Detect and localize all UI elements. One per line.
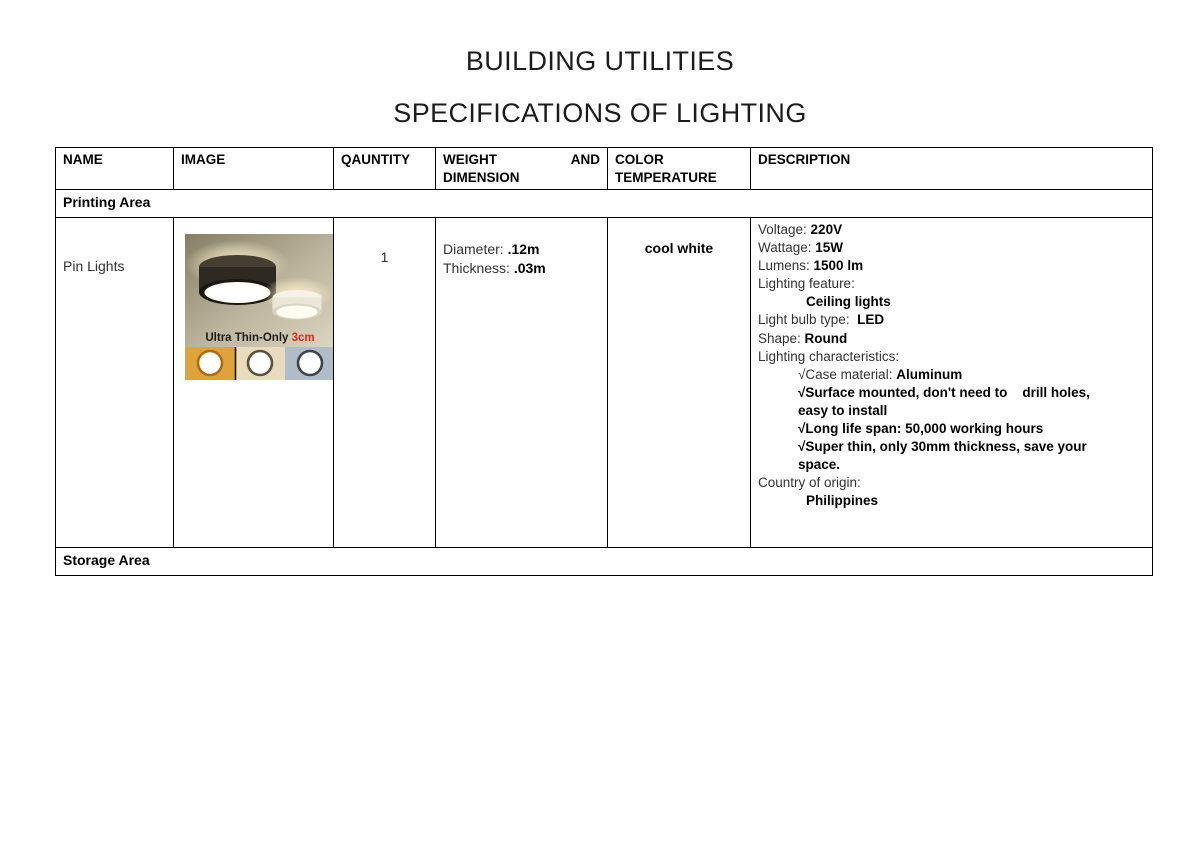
description-line: √Case material: Aluminum xyxy=(798,366,1146,384)
description-line: Voltage: 220V xyxy=(758,221,1146,239)
description-line-value: LED xyxy=(857,312,884,327)
description-line-label: Shape: xyxy=(758,331,805,346)
description-line-label: Lumens: xyxy=(758,258,814,273)
product-description: Voltage: 220VWattage: 15WLumens: 1500 lm… xyxy=(751,218,1153,548)
description-line: √Surface mounted, don't need to drill ho… xyxy=(798,384,1146,420)
dimension-diameter-label: Diameter: xyxy=(443,241,508,257)
description-line-value: 220V xyxy=(811,222,843,237)
description-line: Philippines xyxy=(806,492,1146,510)
description-line-value: Aluminum xyxy=(896,367,962,382)
header-image: IMAGE xyxy=(174,148,334,190)
caption-ultra-thin-text: Ultra Thin-Only xyxy=(205,332,291,344)
product-quantity: 1 xyxy=(334,218,436,548)
description-line-label: Lighting characteristics: xyxy=(758,349,899,364)
product-image-caption: Ultra Thin-Only 3cm xyxy=(205,332,314,344)
swatch-lamp-circle-warm xyxy=(198,351,222,375)
description-line: √Super thin, only 30mm thickness, save y… xyxy=(798,438,1146,474)
description-line-value: Philippines xyxy=(806,493,878,508)
description-line: Wattage: 15W xyxy=(758,239,1146,257)
dimension-diameter: Diameter: .12m xyxy=(443,240,600,259)
description-line: Ceiling lights xyxy=(806,293,1146,311)
header-quantity: QAUNTITY xyxy=(334,148,436,190)
description-line-value: √Long life span: 50,000 working hours xyxy=(798,421,1043,436)
header-color-temperature: COLOR TEMPERATURE xyxy=(608,148,751,190)
header-weight-dimension: WEIGHT AND DIMENSION xyxy=(436,148,608,190)
description-lines: Voltage: 220VWattage: 15WLumens: 1500 lm… xyxy=(758,221,1146,511)
description-line-value: √Surface mounted, don't need to drill ho… xyxy=(798,385,1090,418)
description-line: Lighting feature: xyxy=(758,275,1146,293)
product-name: Pin Lights xyxy=(56,218,174,548)
description-line-value: Round xyxy=(805,331,848,346)
description-line-label: Light bulb type: xyxy=(758,312,857,327)
caption-3cm-text: 3cm xyxy=(292,332,315,344)
description-line: Light bulb type: LED xyxy=(758,311,1146,329)
description-line-value: 15W xyxy=(815,240,843,255)
description-line: √Long life span: 50,000 working hours xyxy=(798,420,1146,438)
pin-lights-product-image: Ultra Thin-Only 3cm xyxy=(185,234,334,380)
table-row-pin-lights: Pin Lights xyxy=(56,218,1153,548)
header-description: DESCRIPTION xyxy=(751,148,1153,190)
section-label-storage-area: Storage Area xyxy=(56,548,1153,576)
description-line-label: √Case material: xyxy=(798,367,896,382)
page-title: BUILDING UTILITIES xyxy=(0,0,1200,78)
description-line: Shape: Round xyxy=(758,330,1146,348)
swatch-lamp-circle-natural xyxy=(248,351,272,375)
description-line-label: Country of origin: xyxy=(758,475,861,490)
description-line: Lumens: 1500 lm xyxy=(758,257,1146,275)
color-temperature-swatches xyxy=(185,347,334,380)
product-image-cell: Ultra Thin-Only 3cm xyxy=(174,218,334,548)
description-line-value: Ceiling lights xyxy=(806,294,891,309)
description-line: Lighting characteristics: xyxy=(758,348,1146,366)
description-line-value: 1500 lm xyxy=(814,258,864,273)
description-line-label: Wattage: xyxy=(758,240,815,255)
description-line: Country of origin: xyxy=(758,474,1146,492)
description-line-label: Lighting feature: xyxy=(758,276,855,291)
section-row-printing-area: Printing Area xyxy=(56,190,1153,218)
document-page: BUILDING UTILITIES SPECIFICATIONS OF LIG… xyxy=(0,0,1200,849)
page-subtitle: SPECIFICATIONS OF LIGHTING xyxy=(0,78,1200,130)
section-label-printing-area: Printing Area xyxy=(56,190,1153,218)
description-line-label: Voltage: xyxy=(758,222,811,237)
swatch-lamp-circle-cool xyxy=(298,351,322,375)
product-dimensions: Diameter: .12m Thickness: .03m xyxy=(436,218,608,548)
description-line-value: √Super thin, only 30mm thickness, save y… xyxy=(798,439,1087,472)
dimension-diameter-value: .12m xyxy=(508,241,540,257)
table-header-row: NAME IMAGE QAUNTITY WEIGHT AND DIMENSION… xyxy=(56,148,1153,190)
dimension-thickness-value: .03m xyxy=(514,260,546,276)
dimension-thickness: Thickness: .03m xyxy=(443,259,600,278)
section-row-storage-area: Storage Area xyxy=(56,548,1153,576)
product-color-temperature: cool white xyxy=(608,218,751,548)
lighting-spec-table: NAME IMAGE QAUNTITY WEIGHT AND DIMENSION… xyxy=(55,147,1153,576)
header-name: NAME xyxy=(56,148,174,190)
dimension-thickness-label: Thickness: xyxy=(443,260,514,276)
